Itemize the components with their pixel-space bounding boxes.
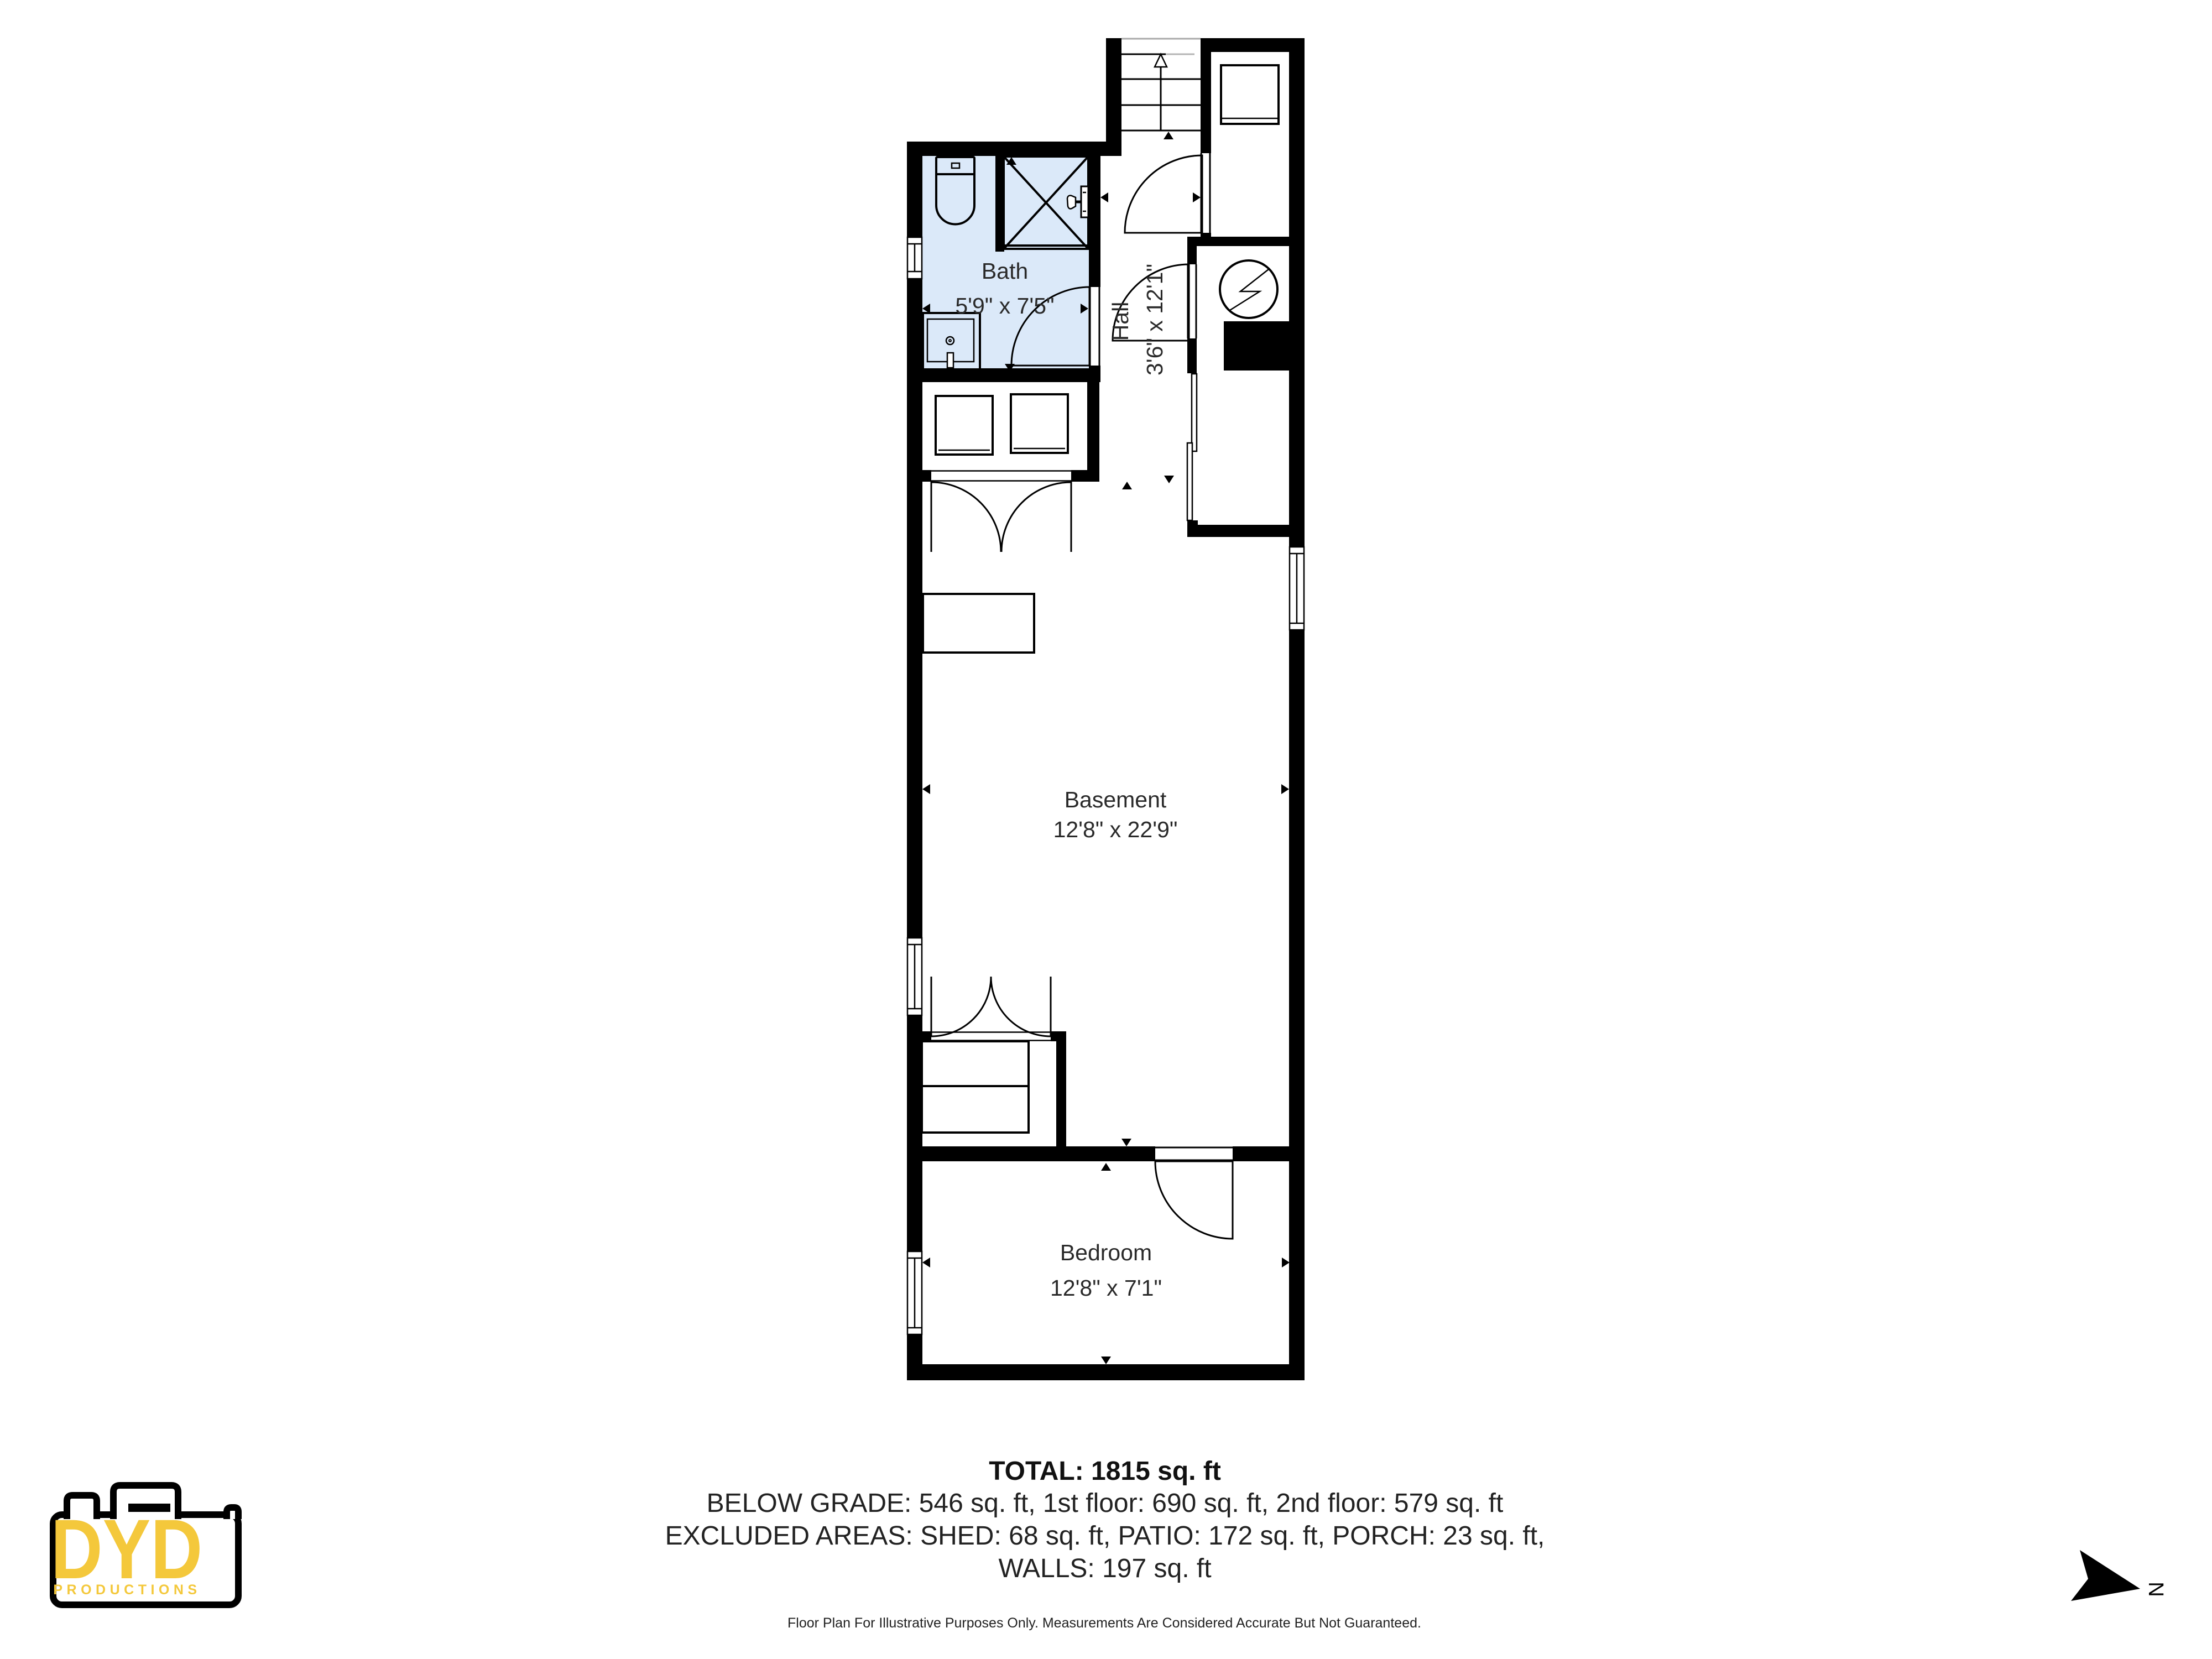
svg-text:EXCLUDED AREAS: SHED: 68 sq. f: EXCLUDED AREAS: SHED: 68 sq. ft, PATIO: … [665,1521,1545,1551]
svg-text:Hall: Hall [1108,302,1133,341]
svg-text:3'6" x 12'1": 3'6" x 12'1" [1142,264,1167,375]
svg-text:TOTAL: 1815 sq. ft: TOTAL: 1815 sq. ft [989,1457,1221,1486]
svg-text:PRODUCTIONS: PRODUCTIONS [53,1582,201,1598]
svg-text:Basement: Basement [1065,787,1167,812]
svg-text:5'9" x 7'5": 5'9" x 7'5" [955,293,1054,319]
svg-text:N: N [2144,1582,2167,1597]
svg-text:BELOW GRADE: 546 sq. ft, 1st f: BELOW GRADE: 546 sq. ft, 1st floor: 690 … [707,1489,1504,1518]
svg-text:Floor Plan For Illustrative Pu: Floor Plan For Illustrative Purposes Onl… [787,1615,1421,1631]
svg-text:12'8" x 22'9": 12'8" x 22'9" [1053,817,1178,842]
svg-text:Bath: Bath [982,258,1028,284]
svg-text:12'8" x 7'1": 12'8" x 7'1" [1050,1275,1162,1301]
svg-text:WALLS: 197 sq. ft: WALLS: 197 sq. ft [998,1554,1211,1583]
svg-text:Bedroom: Bedroom [1060,1240,1152,1265]
